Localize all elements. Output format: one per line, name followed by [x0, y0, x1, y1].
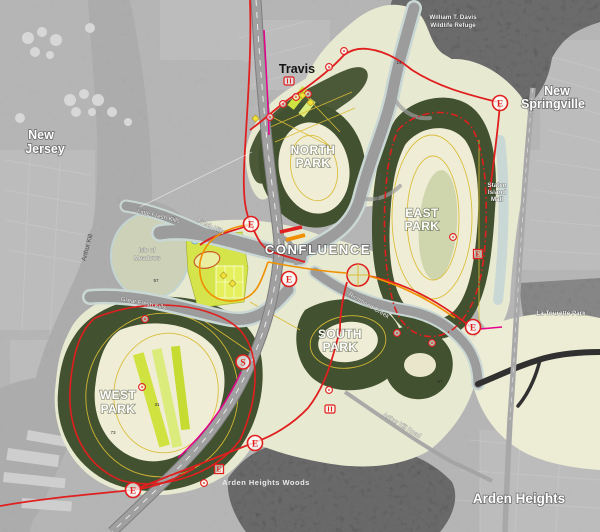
gateway-icon — [325, 405, 335, 413]
entrance-letter: E — [252, 440, 258, 450]
label-east-park-2: PARK — [405, 219, 440, 233]
label-new-jersey-1: New — [28, 128, 54, 142]
roundabout — [347, 264, 369, 286]
entrance-letter: E — [130, 487, 136, 497]
label-travis: Travis — [279, 62, 315, 76]
label-south-park-1: SOUTH — [318, 327, 362, 341]
label-staten-island-mall-1: Staten — [487, 182, 506, 189]
label-east-park-1: EAST — [405, 206, 439, 220]
label-north-park-1: NORTH — [291, 143, 336, 157]
gateway-icon — [284, 77, 294, 85]
area-number: 57 — [153, 278, 159, 283]
label-isle-of-meadows-1: Isle of — [139, 247, 156, 254]
secondary-entrance-marker: E — [215, 465, 224, 474]
label-wildlife-refuge-1: William T. Davis — [429, 14, 477, 21]
label-west-park-1: WEST — [100, 388, 137, 402]
label-new-springville-1: New — [544, 84, 570, 98]
entrance-marker: E — [282, 272, 297, 287]
label-staten-island-mall-3: Mall — [491, 196, 503, 203]
freshkills-park-plan-map: New Jersey Travis New Springville Willia… — [0, 0, 600, 532]
label-west-park-2: PARK — [101, 402, 136, 416]
area-number: 14 — [396, 60, 402, 65]
area-number: 73 — [110, 430, 116, 435]
entrance-marker: E — [248, 436, 263, 451]
entrance-marker: E — [466, 320, 481, 335]
label-south-park-2: PARK — [323, 340, 358, 354]
entrance-letter: E — [497, 100, 503, 110]
area-number: 67 — [437, 379, 443, 384]
label-wildlife-refuge-2: Wildlife Refuge — [430, 22, 476, 29]
entrance-letter: E — [216, 465, 221, 474]
label-isle-of-meadows-2: Meadows — [134, 255, 160, 262]
entrance-marker: E — [126, 483, 141, 498]
entrance-letter: E — [470, 324, 476, 334]
label-confluence: CONFLUENCE — [265, 242, 371, 257]
label-la-tourette-park: La Tourette Park — [536, 310, 586, 317]
label-staten-island-mall-2: Island — [488, 189, 506, 196]
transit-marker: S — [236, 355, 250, 369]
entrance-letter: E — [475, 250, 480, 259]
label-new-springville-2: Springville — [521, 97, 585, 111]
label-arden-heights: Arden Heights — [473, 491, 565, 506]
entrance-letter: E — [248, 221, 254, 231]
entrance-letter: E — [286, 276, 292, 286]
label-north-park-2: PARK — [296, 156, 331, 170]
transit-letter: S — [240, 359, 245, 369]
label-new-jersey-2: Jersey — [25, 142, 65, 156]
secondary-entrance-marker: E — [474, 250, 483, 259]
entrance-marker: E — [493, 96, 508, 111]
entrance-marker: E — [244, 217, 259, 232]
label-arden-heights-woods: Arden Heights Woods — [222, 478, 310, 487]
area-number: 31 — [154, 402, 160, 407]
